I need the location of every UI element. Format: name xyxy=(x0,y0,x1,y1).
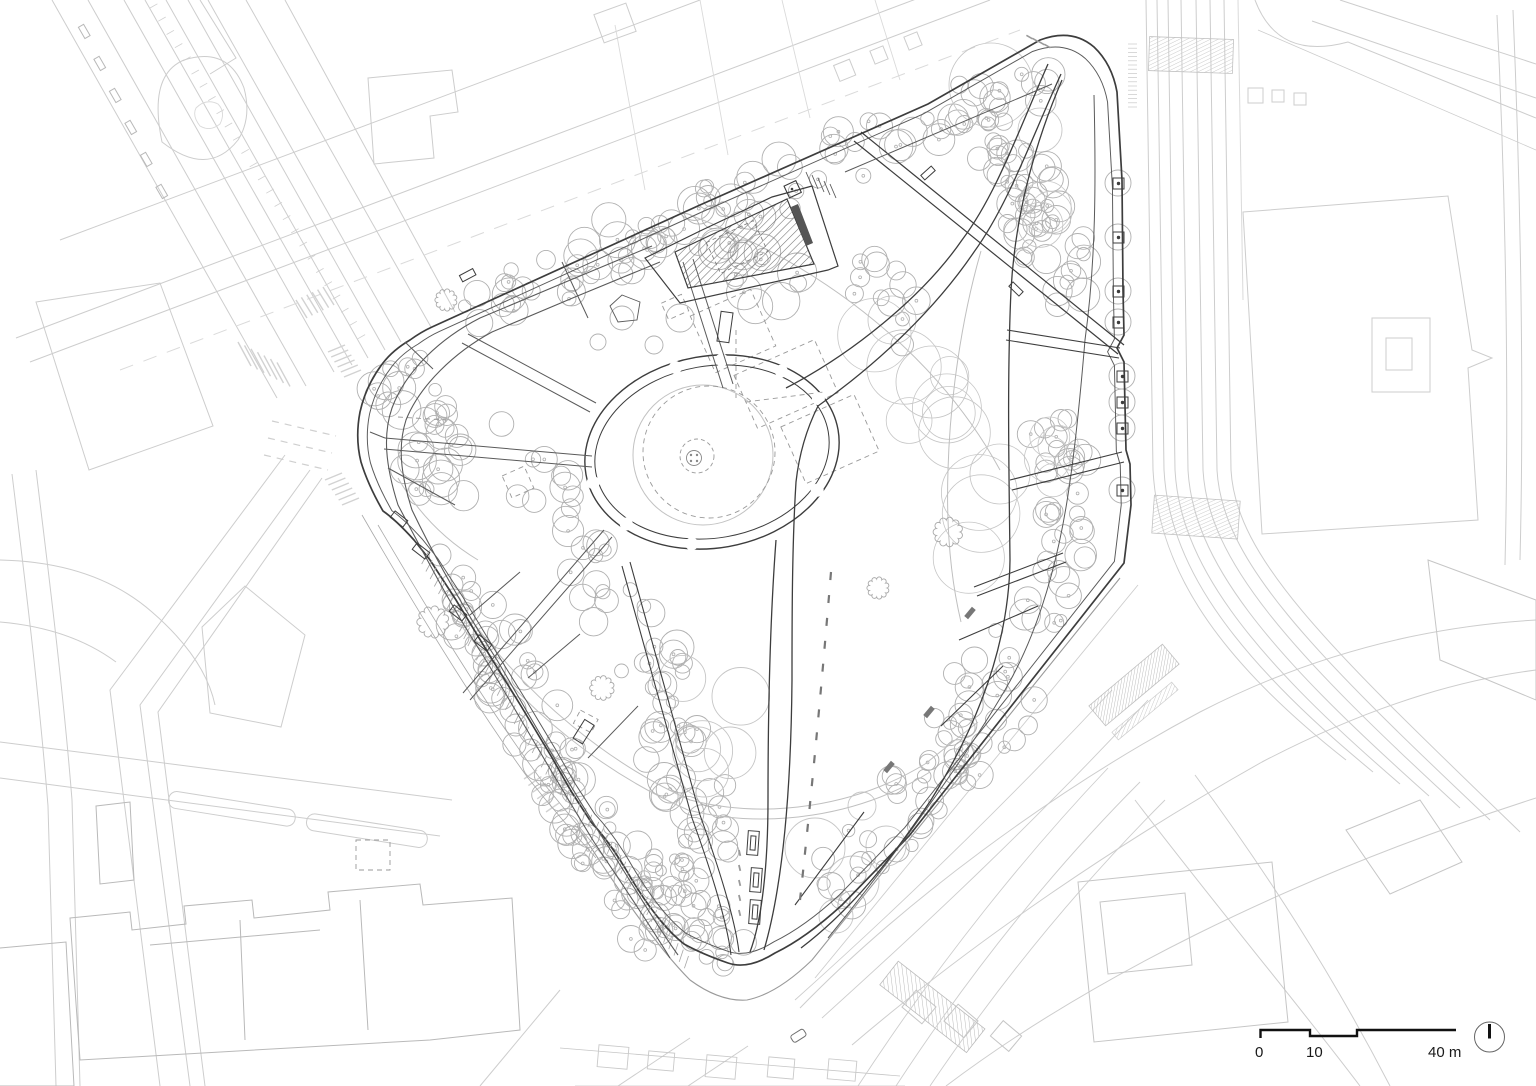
svg-text:10: 10 xyxy=(1306,1044,1323,1061)
svg-text:40 m: 40 m xyxy=(1428,1044,1461,1061)
svg-text:0: 0 xyxy=(1255,1044,1263,1061)
